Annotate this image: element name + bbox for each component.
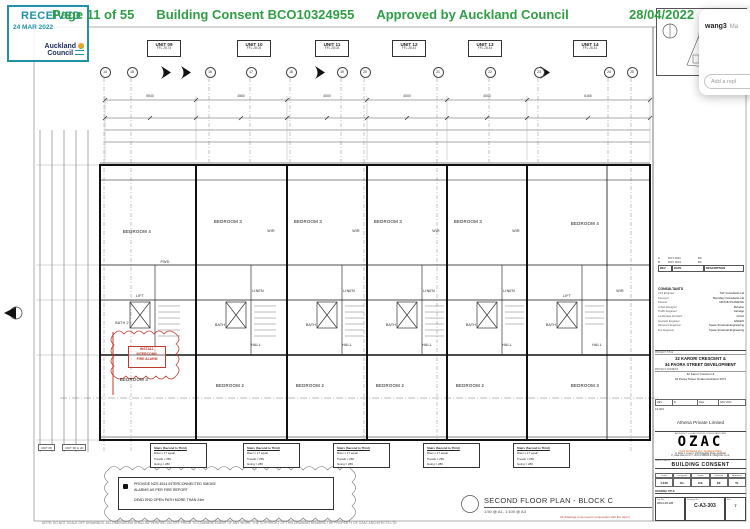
plan-scale: 1:50 @ A1, 1:100 @ A3 bbox=[484, 509, 652, 514]
grid-bubble: 15 bbox=[127, 67, 138, 78]
revision-number: 7 bbox=[727, 503, 744, 508]
room-label: LINEN bbox=[252, 289, 264, 293]
signoff-table: Scale Designed Drawn Checked Approved 1:… bbox=[655, 473, 746, 487]
room-label: BATH bbox=[466, 323, 476, 327]
received-date: 24 MAR 2022 bbox=[13, 24, 53, 31]
dimension-label: 4000 bbox=[483, 94, 491, 98]
ozac-logo: OZAC bbox=[655, 435, 746, 450]
project-title-block: PROJECT TITLE 32 KARORI CRESCENT & 34 PA… bbox=[655, 350, 746, 381]
room-label: LINEN bbox=[423, 289, 435, 293]
job-ref: 16.003 bbox=[655, 407, 746, 411]
unit-label-12: UNIT 12FFL 28.44 bbox=[392, 40, 426, 57]
room-label: BEDROOM 3 bbox=[214, 219, 242, 224]
room-label: WIR bbox=[512, 229, 520, 233]
revision-strip: REV B Date NOV 2021 16.003 bbox=[655, 399, 746, 411]
room-label: WIR bbox=[267, 229, 275, 233]
comment-preview: Ma bbox=[730, 24, 738, 30]
plan-title: SECOND FLOOR PLAN - BLOCK C bbox=[484, 496, 652, 508]
room-label: BEDROOM 2 bbox=[296, 383, 324, 388]
council-logo-icon bbox=[78, 43, 84, 49]
grid-bubble: 23 bbox=[534, 67, 545, 78]
copyright-note: NOTE: DO NOT SCALE OFF DRAWINGS. ALL DIM… bbox=[42, 521, 637, 525]
title-bubble bbox=[462, 496, 479, 513]
client-name: Athena Private Limited bbox=[655, 420, 746, 425]
comment-author: wang3 bbox=[705, 23, 727, 30]
grid-bubble: 21 bbox=[433, 67, 444, 78]
unit-label-14: UNIT 14FFL 28.44 bbox=[573, 40, 607, 57]
room-label: WIR bbox=[616, 289, 624, 293]
drawing-title-label: DRAWING TITLE bbox=[655, 490, 746, 494]
drawing-number: C-A3-303 bbox=[687, 503, 723, 509]
room-label: BEDROOM 4 bbox=[123, 229, 151, 234]
grid-bubble: 20 bbox=[360, 67, 371, 78]
stair-note: Stairs (Second to Third) Riser x 17 equa… bbox=[150, 443, 207, 468]
dimension-label: 4000 bbox=[323, 94, 331, 98]
grid-bubble: 14 bbox=[100, 67, 111, 78]
grid-bubble: 18 bbox=[286, 67, 297, 78]
stair-note: Stairs (Second to Third) Riser x 17 equa… bbox=[243, 443, 300, 468]
architect-block: ARCHITECT & LEAD DESIGN CONSULTANT FIRM … bbox=[655, 431, 746, 457]
approval-header: Page 11 of 55 Building Consent BCO103249… bbox=[52, 7, 569, 22]
room-label: BEDROOM 3 bbox=[454, 219, 482, 224]
smoke-alarm-icon bbox=[123, 484, 128, 489]
room-label: BEDROOM 2 bbox=[376, 383, 404, 388]
room-label: BEDROOM 3 bbox=[571, 383, 599, 388]
room-label: BATH bbox=[215, 323, 225, 327]
revision-table: AOCT 2021BC BNOV 2021BC REVDATEDESCRIPTI… bbox=[658, 256, 744, 272]
stair-note: Stairs (Second to Third) Riser x 17 equa… bbox=[513, 443, 570, 468]
room-label: HALL bbox=[502, 343, 512, 347]
room-label: LINEN bbox=[343, 289, 355, 293]
room-label: BEDROOM 3 bbox=[294, 219, 322, 224]
room-label: BATH bbox=[386, 323, 396, 327]
room-label: PWD bbox=[161, 260, 170, 264]
north-arrow-icon bbox=[4, 307, 22, 319]
consent-number: Building Consent BCO10324955 bbox=[156, 7, 354, 22]
page-indicator: Page 11 of 55 bbox=[52, 7, 134, 22]
red-footnote: All drawings to be read in conjunction w… bbox=[560, 515, 630, 519]
room-label: WIR bbox=[352, 229, 360, 233]
grid-bubble: 24 bbox=[604, 67, 615, 78]
room-label: HALL bbox=[251, 343, 261, 347]
unit-label-10: UNIT 10FFL 28.04 bbox=[237, 40, 271, 57]
approval-date: 28/04/2022 bbox=[629, 7, 694, 22]
smoke-alarm-note: PROVIDE NZS 4514 INTERCONNECTED SMOKE AL… bbox=[118, 477, 334, 510]
room-label: WIR bbox=[432, 229, 440, 233]
unit-label-11: UNIT 11FFL 28.04 bbox=[315, 40, 349, 57]
dimension-label: 6160 bbox=[584, 94, 592, 98]
auckland-council-logo: Auckland Council bbox=[45, 43, 84, 57]
comment-panel: wang3Ma bbox=[699, 9, 750, 95]
drawing-caption: SECOND FLOOR PLAN - BLOCK C 1:50 @ A1, 1… bbox=[484, 496, 652, 514]
approved-text: Approved by Auckland Council bbox=[376, 7, 568, 22]
grid-bubble: 25 bbox=[627, 67, 638, 78]
room-label: BEDROOM 2 bbox=[216, 383, 244, 388]
grid-bubble: 16 bbox=[205, 67, 216, 78]
document-page: RECEIVED 24 MAR 2022 Auckland Council Pa… bbox=[0, 0, 750, 529]
room-label: HALL bbox=[342, 343, 352, 347]
reply-input[interactable] bbox=[704, 74, 750, 89]
room-label: LIFT bbox=[563, 294, 571, 298]
grid-bubble: 17 bbox=[246, 67, 257, 78]
consultants-list: CONSULTANTS Civil EngineerT&T Consultant… bbox=[658, 287, 744, 333]
grid-bubble: 22 bbox=[485, 67, 496, 78]
dimension-label: 5540 bbox=[146, 94, 154, 98]
issue-status-block: ISSUE STATUS BUILDING CONSENT bbox=[655, 459, 746, 469]
room-label: BEDROOM 4 bbox=[571, 221, 599, 226]
dimension-label: 4560 bbox=[237, 94, 245, 98]
room-label: LINEN bbox=[503, 289, 515, 293]
room-label: BEDROOM 3 bbox=[120, 377, 148, 382]
unit-tag: UNIT 3D & LD bbox=[62, 444, 86, 451]
room-label: HALL bbox=[592, 343, 602, 347]
room-label: BEDROOM 3 bbox=[374, 219, 402, 224]
room-label: HALL bbox=[422, 343, 432, 347]
room-label: BATH 2 bbox=[115, 321, 129, 325]
room-label: LIFT bbox=[136, 294, 144, 298]
room-label: BATH bbox=[546, 323, 556, 327]
room-label: BEDROOM 2 bbox=[456, 383, 484, 388]
stair-note: Stairs (Second to Third) Riser x 17 equa… bbox=[423, 443, 480, 468]
dimension-label: 4000 bbox=[403, 94, 411, 98]
stair-note: Stairs (Second to Third) Riser x 17 equa… bbox=[333, 443, 390, 468]
grid-bubble: 19 bbox=[337, 67, 348, 78]
unit-tag: UNIT 08 bbox=[38, 444, 55, 451]
room-label: BATH bbox=[306, 323, 316, 327]
issue-status: BUILDING CONSENT bbox=[655, 462, 746, 468]
drawing-number-block: Job No 2004-20-HB Drawing No C-A3-303 Re… bbox=[655, 497, 746, 521]
council-wave-icon bbox=[75, 50, 84, 55]
unit-label-13: UNIT 13FFL 28.44 bbox=[468, 40, 502, 57]
fire-alarm-annotation: INSTALL INTERCONN. FIRE ALARM bbox=[128, 346, 166, 368]
unit-label-09: UNIT 09FFL 28.74 bbox=[147, 40, 181, 57]
